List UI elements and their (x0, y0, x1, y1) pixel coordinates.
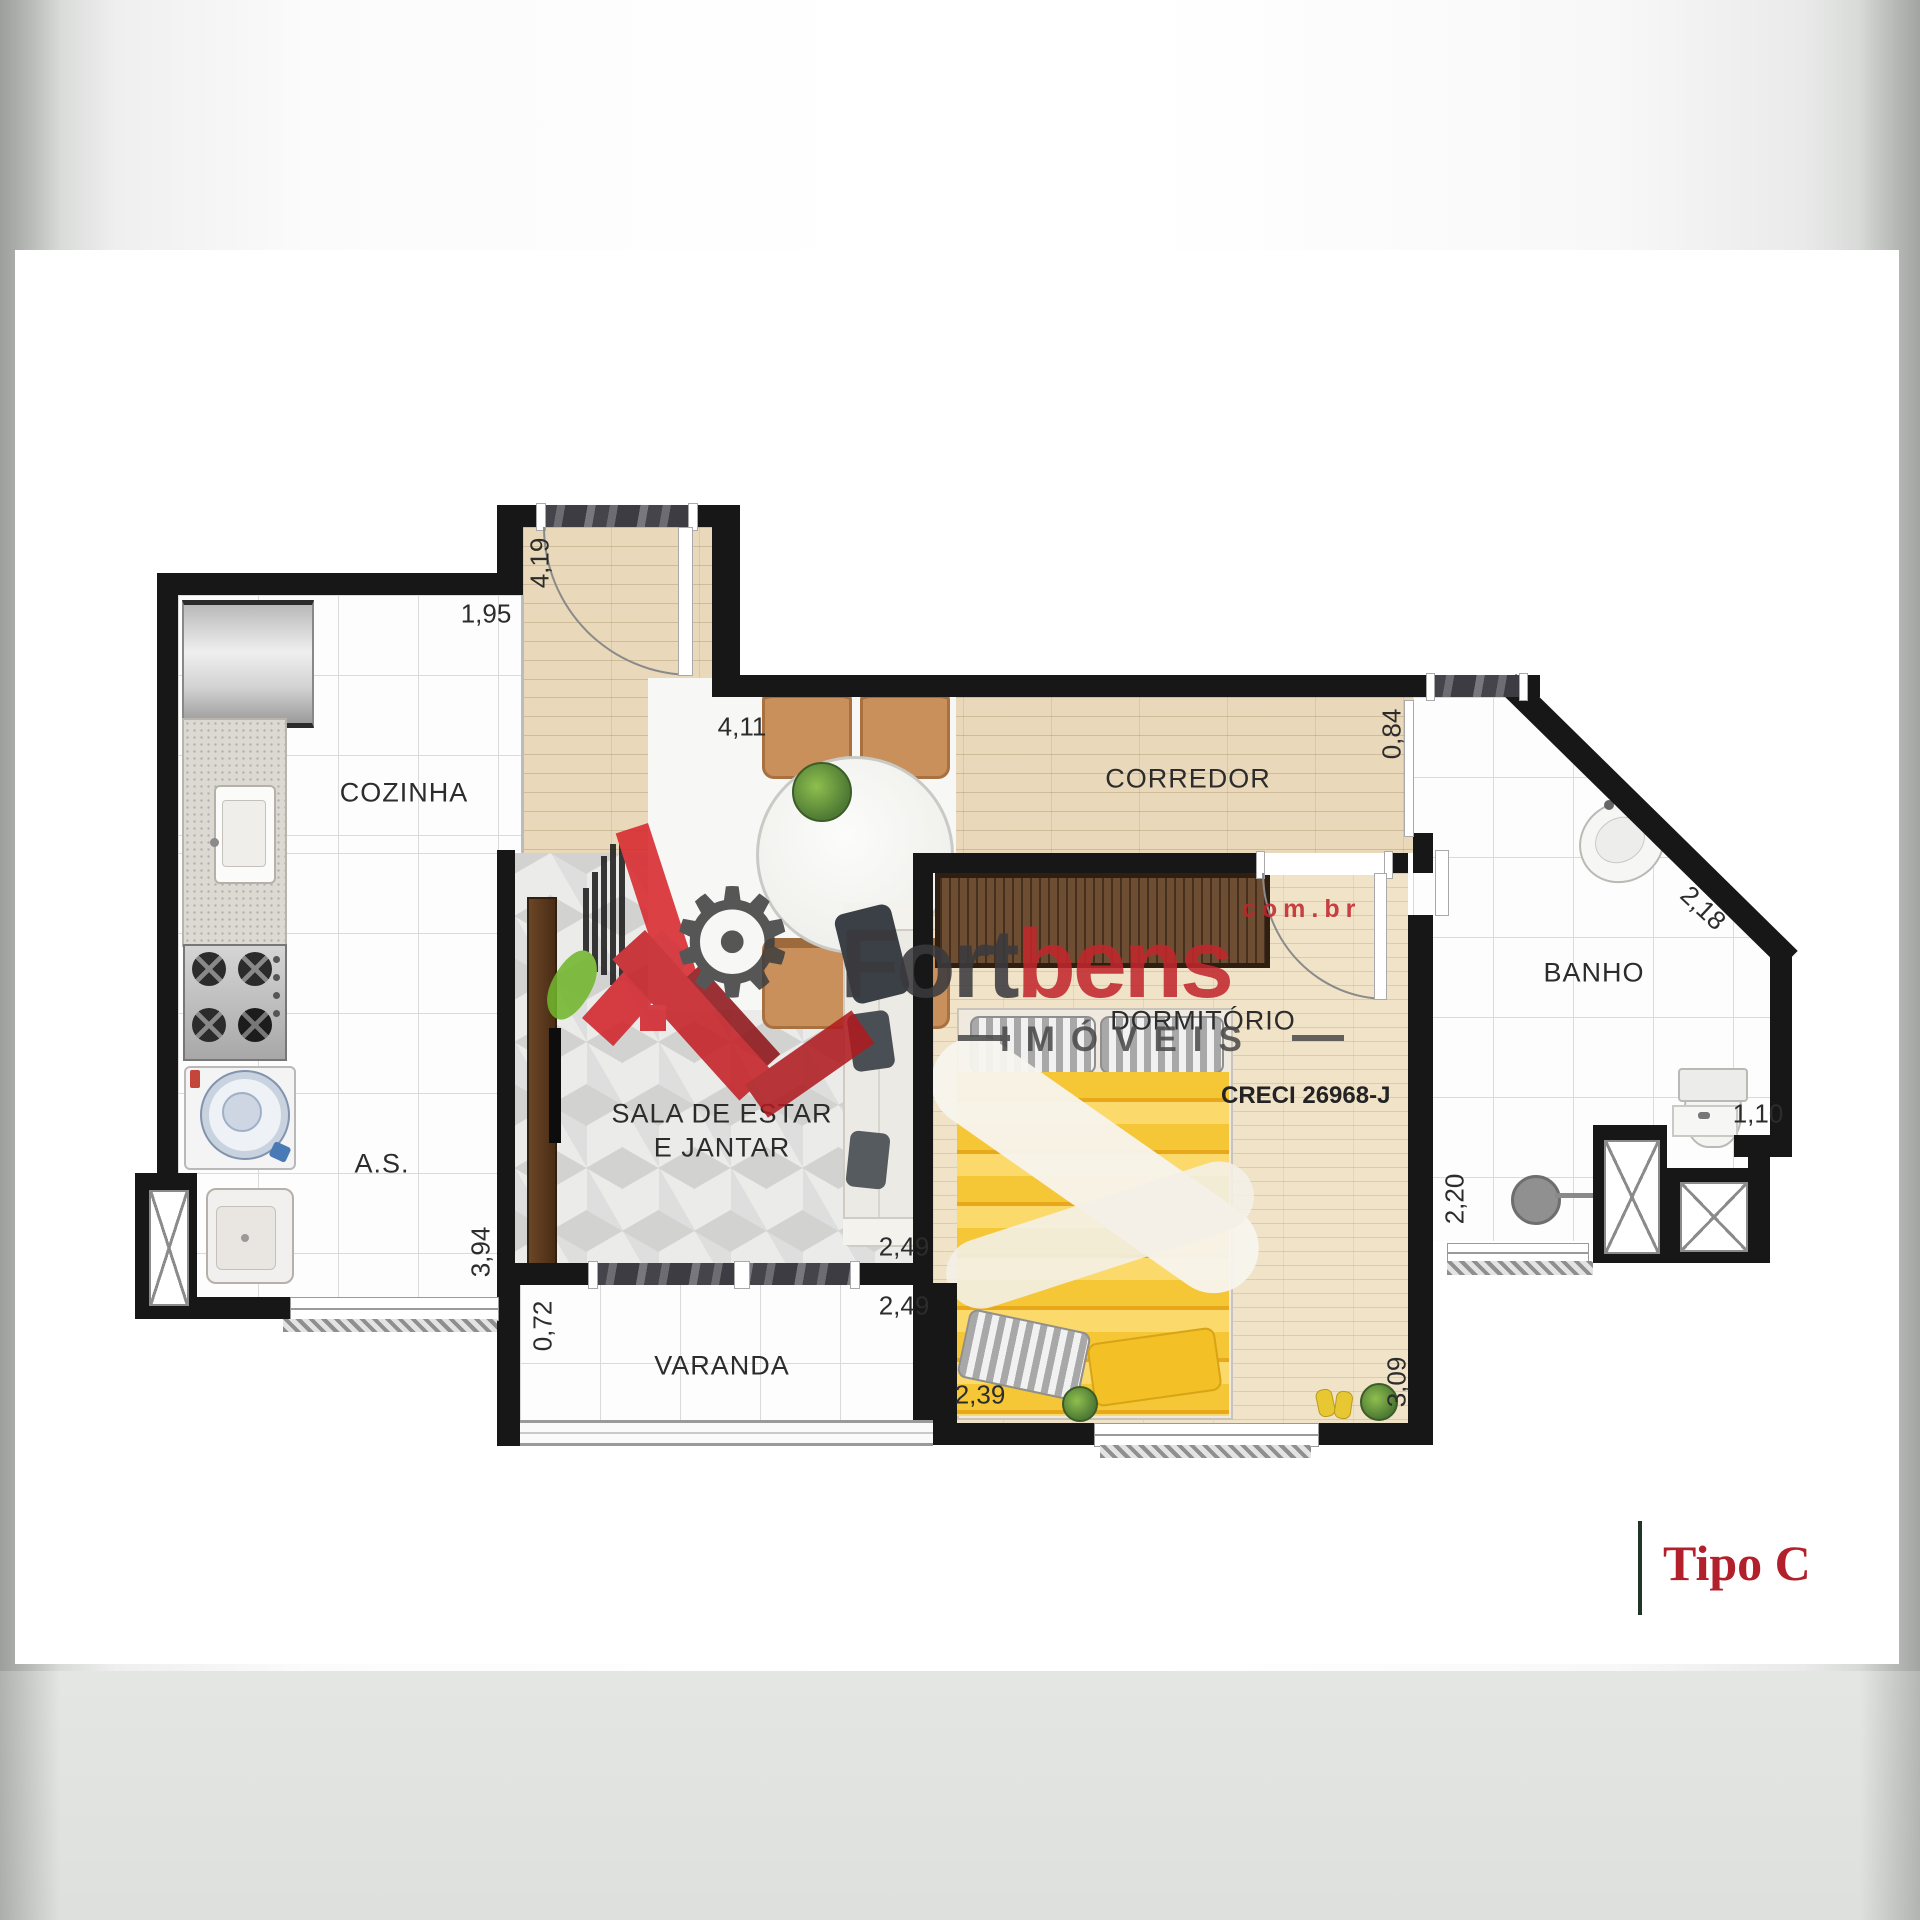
brand-subtitle: IMÓVEIS (1000, 1020, 1258, 1060)
variant-divider (1638, 1521, 1642, 1615)
brand-domain: com.br (1242, 895, 1361, 924)
watermark-logo: ⚙ Fortbens com.br IMÓVEIS (15, 250, 1899, 1664)
brand-first: Fort (840, 909, 1017, 1018)
background-lower-band (0, 1671, 1920, 1920)
logo-square-icon (640, 1005, 666, 1031)
screenshot-canvas: COZINHA CORREDOR BANHO A.S. SALA DE ESTA… (0, 0, 1920, 1920)
brand-wordmark: Fortbens (840, 915, 1231, 1012)
floorplan-sheet: COZINHA CORREDOR BANHO A.S. SALA DE ESTA… (15, 250, 1899, 1664)
logo-bar-icon (610, 844, 616, 985)
variant-label: Tipo C (1663, 1534, 1811, 1592)
logo-bar-icon (601, 856, 607, 975)
brand-dash-right (1292, 1035, 1344, 1041)
gear-icon: ⚙ (665, 868, 815, 1018)
brand-second: bens (1017, 909, 1231, 1018)
